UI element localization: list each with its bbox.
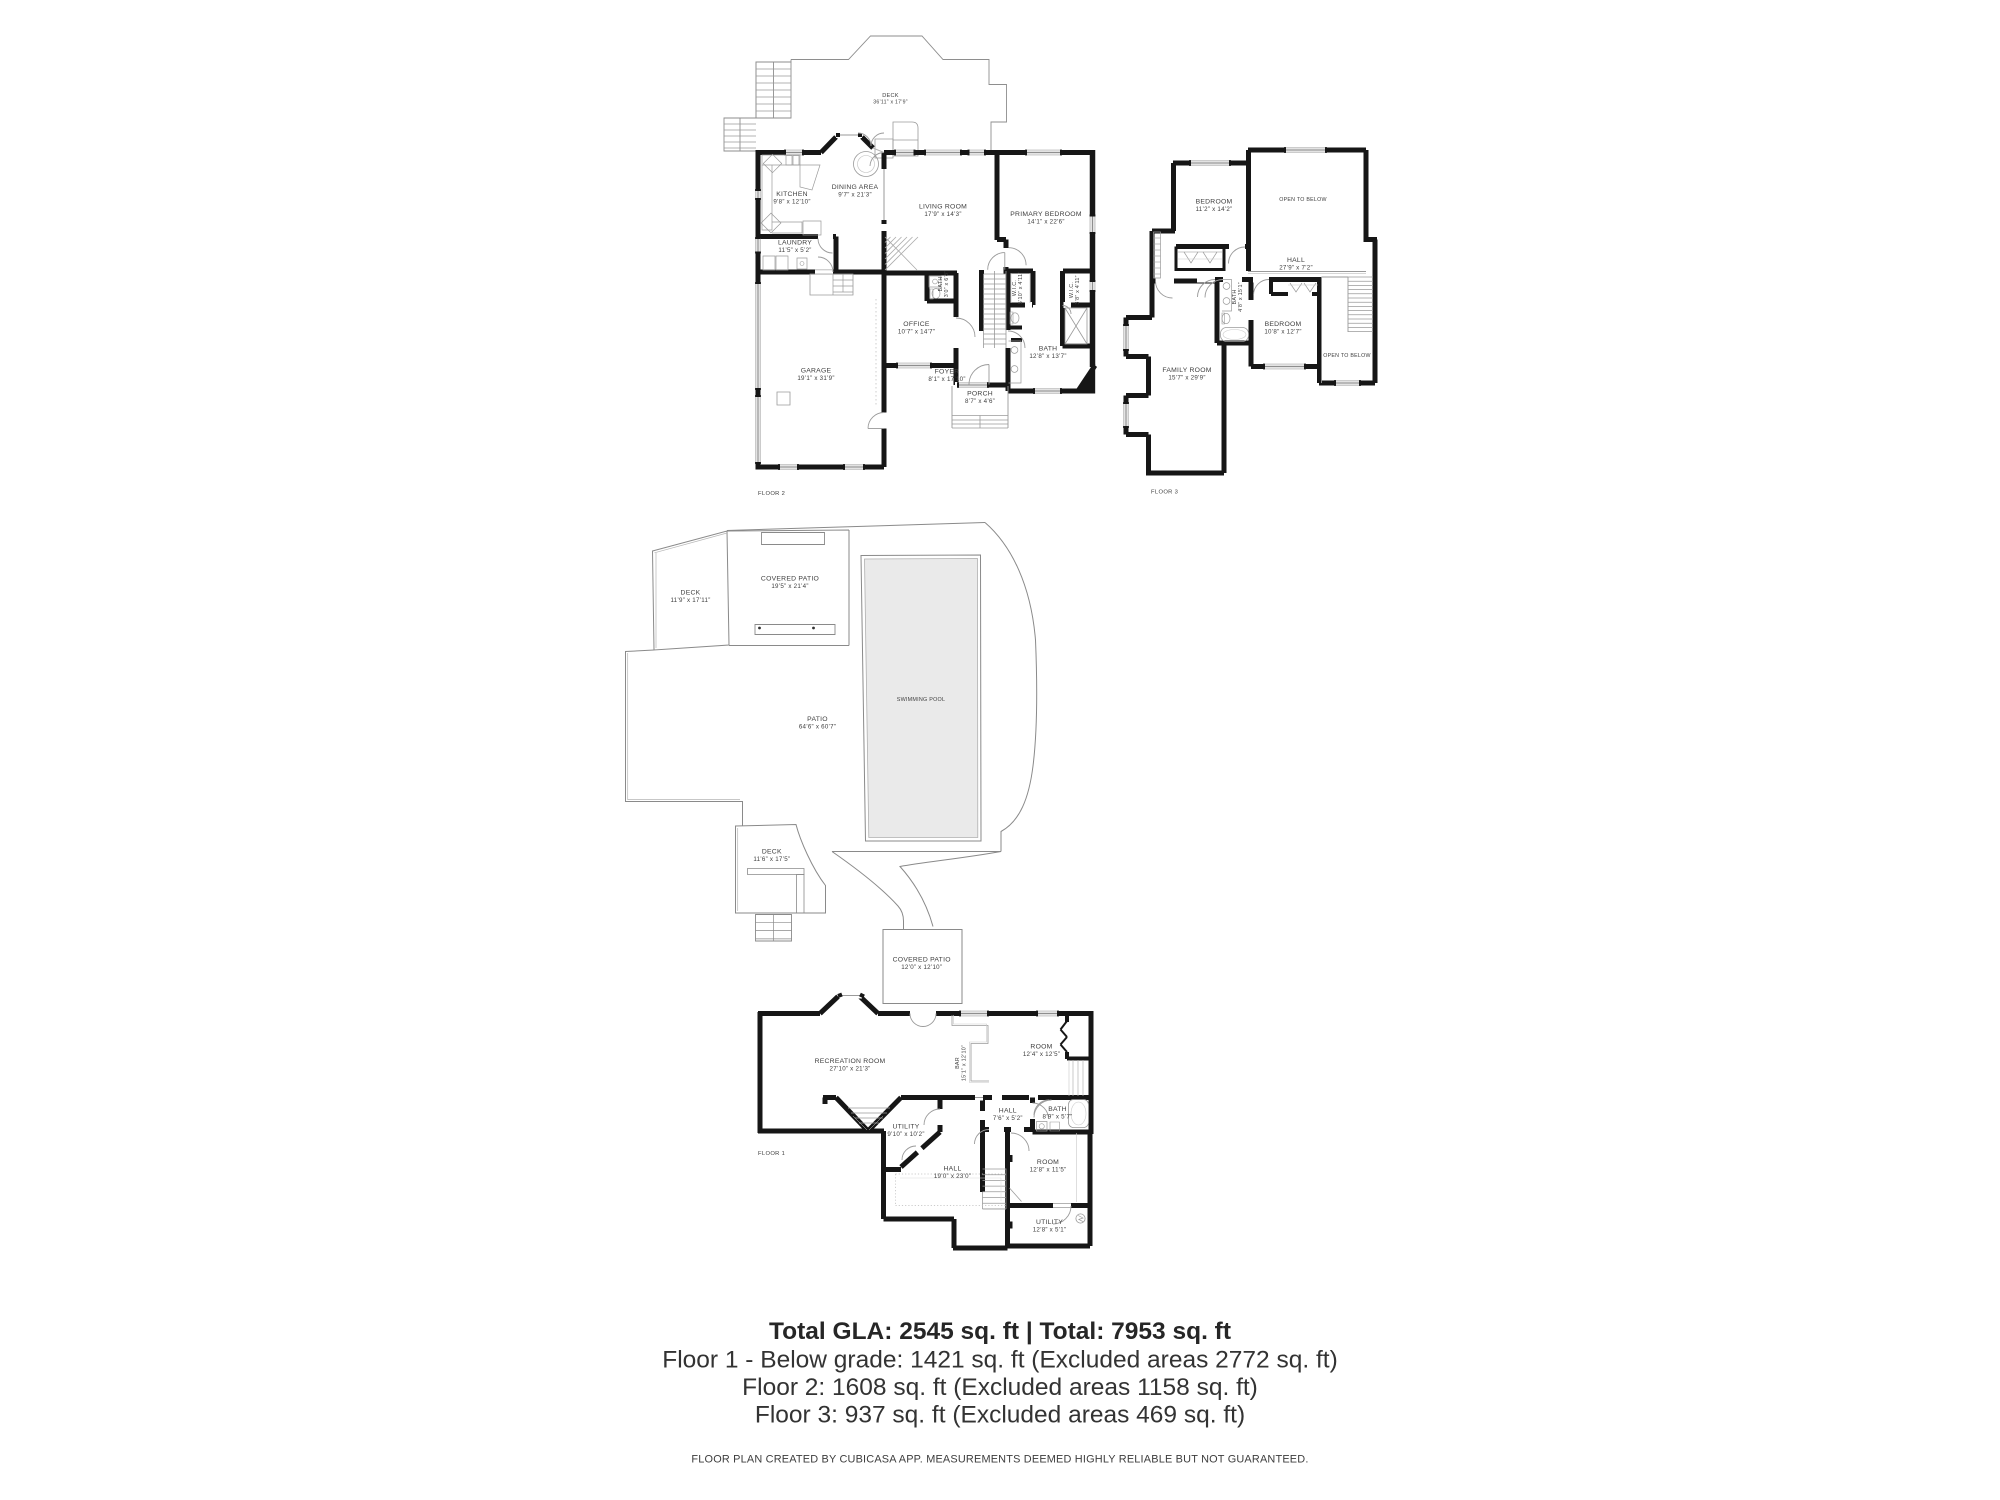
svg-text:12’8” x 5’1”: 12’8” x 5’1” — [1033, 1226, 1067, 1233]
svg-text:GARAGE: GARAGE — [801, 368, 832, 375]
svg-text:UTILITY: UTILITY — [892, 1124, 919, 1131]
svg-text:Total GLA: 2545 sq. ft | Total: Total GLA: 2545 sq. ft | Total: 7953 sq.… — [769, 1318, 1231, 1345]
svg-text:LAUNDRY: LAUNDRY — [778, 240, 812, 247]
svg-text:8’7” x 4’6”: 8’7” x 4’6” — [965, 398, 995, 405]
svg-text:27’9” x 7’2”: 27’9” x 7’2” — [1279, 264, 1313, 271]
svg-text:4’8” x 15’1”: 4’8” x 15’1” — [1238, 282, 1244, 312]
svg-text:3’8” x 4’11”: 3’8” x 4’11” — [1075, 275, 1081, 304]
svg-text:BATH: BATH — [1048, 1106, 1067, 1113]
svg-text:27’10” x 21’3”: 27’10” x 21’3” — [830, 1065, 871, 1072]
svg-text:11’6” x 17’5”: 11’6” x 17’5” — [753, 856, 790, 863]
svg-text:FOYER: FOYER — [935, 369, 960, 376]
svg-text:Floor 3: 937 sq. ft (Excluded: Floor 3: 937 sq. ft (Excluded areas 469 … — [755, 1402, 1245, 1429]
svg-text:36’11” x 17’9”: 36’11” x 17’9” — [873, 99, 908, 105]
svg-text:KITCHEN: KITCHEN — [776, 191, 808, 198]
svg-text:DINING AREA: DINING AREA — [832, 184, 879, 191]
svg-text:12’0” x 12’10”: 12’0” x 12’10” — [901, 964, 942, 971]
svg-text:SWIMMING POOL: SWIMMING POOL — [897, 697, 945, 703]
svg-text:RECREATION ROOM: RECREATION ROOM — [815, 1058, 886, 1065]
svg-text:Floor 1 - Below grade: 1421 sq: Floor 1 - Below grade: 1421 sq. ft (Excl… — [662, 1347, 1337, 1374]
svg-text:BAR: BAR — [955, 1057, 961, 1069]
svg-text:9’7” x 21’3”: 9’7” x 21’3” — [838, 191, 872, 198]
svg-text:Floor 2: 1608 sq. ft (Excluded: Floor 2: 1608 sq. ft (Excluded areas 115… — [742, 1374, 1258, 1401]
svg-text:DECK: DECK — [882, 93, 899, 99]
svg-text:17’9” x 14’3”: 17’9” x 14’3” — [924, 211, 961, 218]
svg-text:FLOOR 2: FLOOR 2 — [758, 491, 785, 497]
svg-text:ROOM: ROOM — [1037, 1159, 1059, 1166]
svg-text:10’8” x 12’7”: 10’8” x 12’7” — [1264, 328, 1301, 335]
svg-text:HALL: HALL — [1287, 257, 1305, 264]
svg-text:COVERED PATIO: COVERED PATIO — [761, 576, 819, 583]
svg-text:12’8” x 11’5”: 12’8” x 11’5” — [1030, 1166, 1067, 1173]
svg-text:5’10” x 4’11”: 5’10” x 4’11” — [1018, 272, 1024, 305]
svg-text:15’1” x 12’10”: 15’1” x 12’10” — [961, 1045, 967, 1081]
svg-text:BATH: BATH — [1232, 290, 1238, 305]
svg-text:DECK: DECK — [762, 849, 782, 856]
svg-text:W.I.C.: W.I.C. — [1012, 280, 1018, 296]
svg-text:7’6” x 5’2”: 7’6” x 5’2” — [993, 1115, 1023, 1122]
svg-text:12’8” x 13’7”: 12’8” x 13’7” — [1029, 353, 1066, 360]
svg-text:FLOOR 1: FLOOR 1 — [758, 1151, 785, 1157]
svg-text:HALL: HALL — [943, 1166, 961, 1173]
svg-text:11’2” x 14’2”: 11’2” x 14’2” — [1196, 206, 1233, 213]
svg-text:W.I.C.: W.I.C. — [1069, 282, 1075, 298]
svg-text:15’7” x 29’9”: 15’7” x 29’9” — [1168, 374, 1205, 381]
svg-text:DECK: DECK — [681, 590, 701, 597]
svg-text:9’10” x 10’2”: 9’10” x 10’2” — [887, 1131, 924, 1138]
svg-text:19’5” x 21’4”: 19’5” x 21’4” — [771, 583, 808, 590]
svg-text:11’5” x 5’2”: 11’5” x 5’2” — [778, 247, 811, 254]
svg-text:PORCH: PORCH — [967, 391, 993, 398]
svg-text:64’6” x 60’7”: 64’6” x 60’7” — [799, 723, 836, 730]
svg-text:10’7” x 14’7”: 10’7” x 14’7” — [898, 328, 935, 335]
svg-text:3’0” x 6’8”: 3’0” x 6’8” — [944, 271, 950, 297]
svg-text:BEDROOM: BEDROOM — [1196, 199, 1233, 206]
svg-text:UTILITY: UTILITY — [1036, 1219, 1063, 1226]
svg-text:OPEN TO BELOW: OPEN TO BELOW — [1279, 197, 1327, 203]
svg-text:OFFICE: OFFICE — [903, 321, 930, 328]
svg-text:8’1” x 17’10”: 8’1” x 17’10” — [928, 376, 965, 383]
svg-text:FAMILY ROOM: FAMILY ROOM — [1162, 367, 1211, 374]
svg-text:19’0” x 23’0”: 19’0” x 23’0” — [934, 1173, 971, 1180]
svg-text:OPEN TO BELOW: OPEN TO BELOW — [1323, 353, 1371, 359]
svg-text:12’4” x 12’5”: 12’4” x 12’5” — [1023, 1051, 1060, 1058]
svg-text:11’9” x 17’11”: 11’9” x 17’11” — [670, 597, 710, 604]
svg-text:FLOOR 3: FLOOR 3 — [1151, 490, 1178, 496]
svg-text:BEDROOM: BEDROOM — [1265, 321, 1302, 328]
svg-text:BATH: BATH — [1039, 346, 1058, 353]
svg-text:FLOOR PLAN CREATED BY CUBICASA: FLOOR PLAN CREATED BY CUBICASA APP. MEAS… — [691, 1454, 1308, 1466]
svg-text:BATH: BATH — [938, 277, 944, 292]
svg-text:PATIO: PATIO — [807, 716, 828, 723]
svg-text:HALL: HALL — [999, 1108, 1017, 1115]
svg-text:LIVING ROOM: LIVING ROOM — [919, 204, 967, 211]
svg-text:ROOM: ROOM — [1030, 1044, 1052, 1051]
svg-text:8’9” x 5’7”: 8’9” x 5’7” — [1043, 1113, 1073, 1120]
svg-text:14’1” x 22’6”: 14’1” x 22’6” — [1027, 218, 1064, 225]
svg-text:9’8” x 12’10”: 9’8” x 12’10” — [773, 198, 810, 205]
svg-text:19’1” x 31’9”: 19’1” x 31’9” — [797, 375, 834, 382]
svg-text:PRIMARY BEDROOM: PRIMARY BEDROOM — [1010, 211, 1082, 218]
svg-text:COVERED PATIO: COVERED PATIO — [893, 957, 951, 964]
